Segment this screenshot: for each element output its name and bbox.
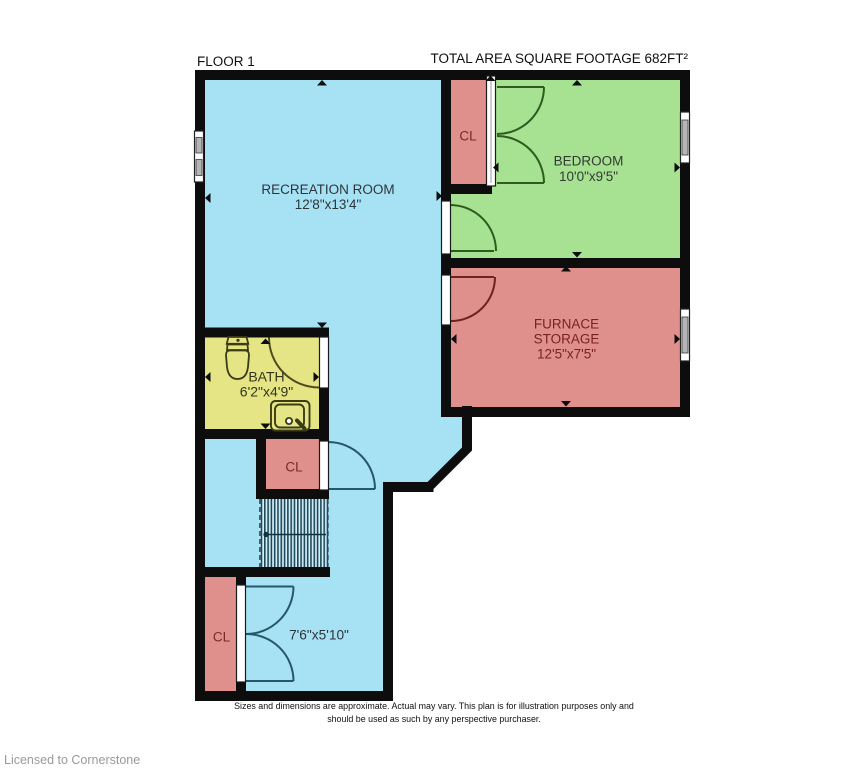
svg-text:Sizes and dimensions are appro: Sizes and dimensions are approximate. Ac…	[234, 701, 634, 711]
svg-text:should be used as such by any: should be used as such by any perspectiv…	[327, 714, 541, 724]
svg-text:CL: CL	[213, 630, 231, 645]
svg-text:12'5"x7'5": 12'5"x7'5"	[537, 347, 596, 362]
svg-text:12'8"x13'4": 12'8"x13'4"	[295, 197, 362, 212]
svg-text:CL: CL	[285, 460, 303, 475]
svg-text:10'0"x9'5": 10'0"x9'5"	[559, 169, 618, 184]
svg-text:Licensed to Cornerstone: Licensed to Cornerstone	[4, 753, 140, 767]
svg-text:FLOOR 1: FLOOR 1	[197, 54, 255, 69]
svg-text:TOTAL AREA SQUARE FOOTAGE 682F: TOTAL AREA SQUARE FOOTAGE 682FT²	[430, 51, 688, 66]
svg-text:RECREATION ROOM: RECREATION ROOM	[261, 182, 394, 197]
svg-text:7'6"x5'10": 7'6"x5'10"	[289, 628, 349, 643]
svg-text:STORAGE: STORAGE	[534, 332, 600, 347]
svg-text:BATH: BATH	[248, 369, 284, 385]
svg-text:CL: CL	[459, 129, 477, 144]
svg-text:6'2"x4'9": 6'2"x4'9"	[240, 384, 293, 400]
svg-text:BEDROOM: BEDROOM	[554, 154, 624, 169]
svg-text:FURNACE: FURNACE	[534, 317, 599, 332]
